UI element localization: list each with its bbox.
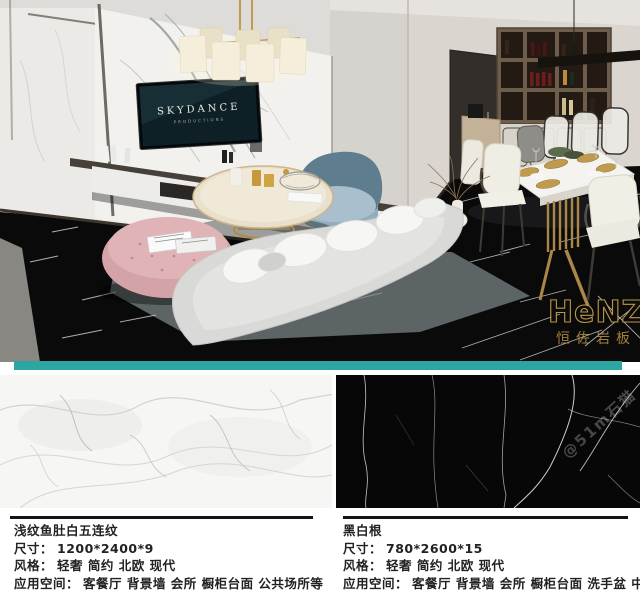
tv: SKYDANCE PRODUCTIONS bbox=[136, 76, 262, 149]
right-rule bbox=[343, 516, 628, 519]
product-spec-right: 黑白根 尺寸：780*2600*15 风格：轻奢 简约 北欧 现代 应用空间：客… bbox=[343, 522, 640, 592]
brand-logo: HeNZO 恒佐岩板 bbox=[548, 295, 640, 347]
product-name: 黑白根 bbox=[343, 522, 640, 540]
black-marble-swatch: @51m石猫 bbox=[336, 375, 640, 508]
product-poster: SKYDANCE PRODUCTIONS bbox=[0, 0, 640, 596]
interior-render: SKYDANCE PRODUCTIONS bbox=[0, 0, 640, 362]
product-style: 风格：轻奢 简约 北欧 现代 bbox=[14, 557, 330, 575]
product-space: 应用空间：客餐厅 背景墙 会所 橱柜台面 公共场所等 bbox=[14, 575, 330, 593]
brand-logo-tagline: 恒佐岩板 bbox=[556, 331, 636, 347]
product-style: 风格：轻奢 简约 北欧 现代 bbox=[343, 557, 640, 575]
product-size: 尺寸：780*2600*15 bbox=[343, 540, 640, 558]
left-rule bbox=[10, 516, 313, 519]
product-size: 尺寸：1200*2400*9 bbox=[14, 540, 330, 558]
teal-divider bbox=[14, 361, 622, 370]
product-name: 浅纹鱼肚白五连纹 bbox=[14, 522, 330, 540]
brand-logo-text: HeNZO bbox=[548, 295, 640, 330]
white-marble-swatch bbox=[0, 375, 332, 508]
product-spec-left: 浅纹鱼肚白五连纹 尺寸：1200*2400*9 风格：轻奢 简约 北欧 现代 应… bbox=[14, 522, 330, 592]
product-space: 应用空间：客餐厅 背景墙 会所 橱柜台面 洗手盆 中岛台 bbox=[343, 575, 640, 593]
